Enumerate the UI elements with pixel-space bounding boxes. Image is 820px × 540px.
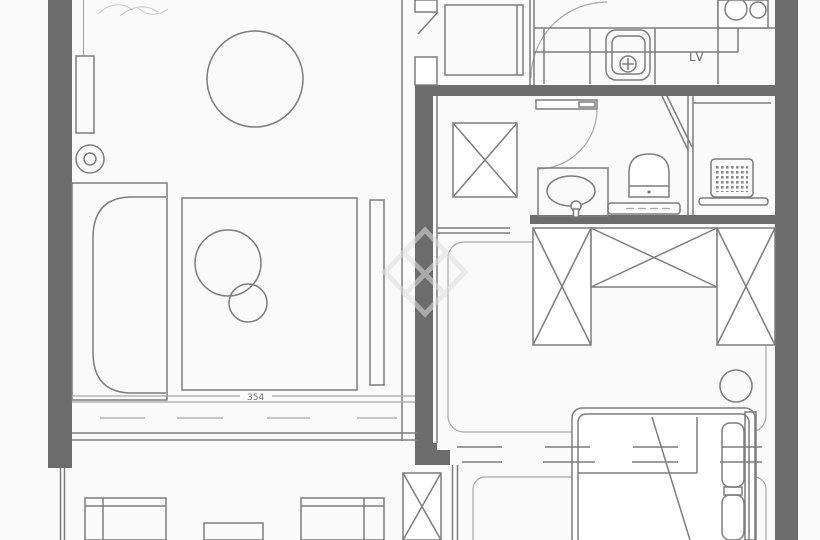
door-jamb-stub-bottom (415, 57, 437, 85)
floor-plan-drawing: LV (0, 0, 820, 540)
dimension-line: 354 (72, 393, 415, 403)
floor-lamp (76, 145, 104, 173)
kitchen: LV (445, 0, 775, 85)
entry-hall (453, 123, 517, 197)
wall-faces (61, 0, 458, 540)
balcony (85, 473, 441, 540)
dimension-label: 354 (247, 393, 264, 403)
fridge-cabinet (445, 5, 523, 75)
balcony-chair-right (301, 498, 384, 540)
chamfer-wall (662, 96, 688, 150)
sofa (72, 183, 167, 400)
double-bed-sofa (182, 198, 357, 390)
bathroom (536, 96, 693, 217)
right-exterior-wall (775, 0, 798, 540)
dishwasher-label: LV (689, 50, 705, 64)
washing-machine-grid (716, 164, 748, 192)
entry-door-leaf (418, 12, 438, 34)
left-exterior-wall (48, 0, 72, 468)
console-shelf (370, 200, 384, 385)
laundry-closet (693, 103, 771, 205)
vanity-sink (538, 168, 608, 217)
radiator (76, 56, 94, 133)
bed (572, 408, 756, 540)
bedroom (437, 228, 775, 540)
shelf (699, 198, 768, 205)
decor-circle-large (195, 230, 261, 296)
door-jamb-stub-top (415, 0, 437, 12)
balcony-planter (403, 473, 441, 540)
bedside-stool (720, 370, 752, 402)
bathroom-door-swing-arc (537, 109, 597, 169)
wardrobe-top (591, 228, 717, 287)
balcony-table (204, 523, 263, 540)
kitchen-bath-divider-wall (418, 85, 775, 96)
wardrobe-right (717, 228, 775, 345)
floor-plan-canvas: LV (0, 0, 820, 540)
center-wall-foot (415, 443, 450, 465)
balcony-chair-left (85, 498, 166, 540)
round-table (207, 31, 303, 127)
kitchen-sink (606, 30, 650, 80)
toilet (608, 154, 680, 214)
living-room: 354 (72, 5, 418, 440)
plant-sketch (98, 5, 133, 14)
kitchen-door-swing-arc (531, 2, 607, 78)
wardrobe-left (533, 228, 591, 345)
